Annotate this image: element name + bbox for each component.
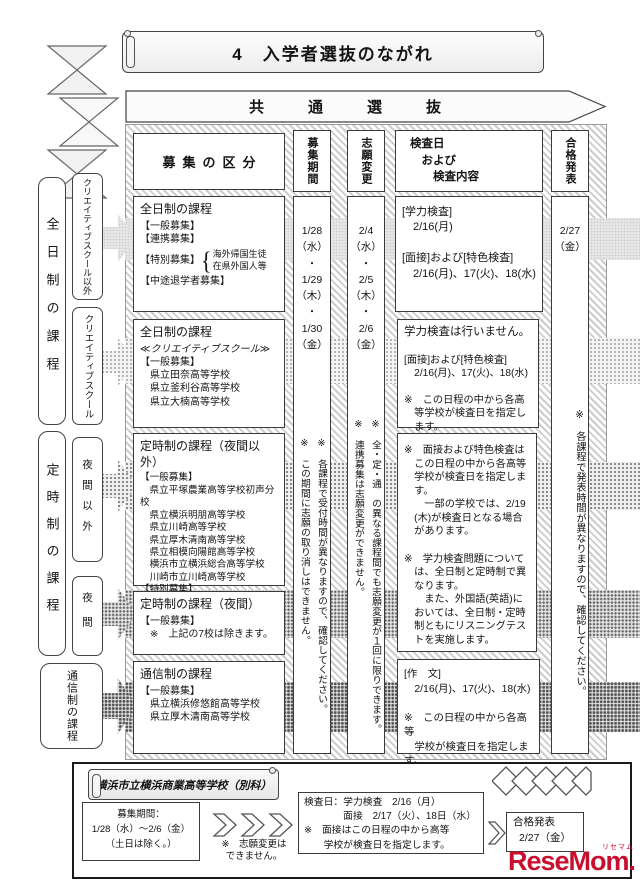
bekka-result-title: 合格発表 bbox=[513, 815, 577, 831]
sidebar-label-night-other: 夜間以外 bbox=[72, 437, 103, 562]
period-notes: ※ 各課程で受付時間が異なりますので、確認してください。 ※ この期間に志願の取… bbox=[294, 407, 330, 745]
column-header-exam: 検査日 および 検査内容 bbox=[395, 130, 543, 192]
category-items: 【一般募集】 県立横浜修悠館高等学校 県立厚木清南高等学校 bbox=[140, 685, 278, 725]
category-box-parttime-night: 定時制の課程（夜間） 【一般募集】 ※ 上記の7校は除きます。 bbox=[133, 591, 285, 655]
resemom-logo: リセマム ReseMom. bbox=[508, 846, 640, 882]
bekka-title: 横浜市立横浜商業高等学校（別科） bbox=[96, 777, 272, 793]
change-column: 2/4 （水） ・ 2/5 （木） ・ 2/6 （金） ※ 全・定・通 の異なる… bbox=[347, 196, 385, 754]
category-box-creative: 全日制の課程 ≪クリエイティブスクール≫ 【一般募集】 県立田奈高等学校 県立釜… bbox=[133, 319, 285, 428]
category-box-fulltime-general: 全日制の課程 【一般募集】 【連携募集】 【特別募集】 { 海外帰国生徒 在県外… bbox=[133, 196, 285, 312]
chevrons-right-icon bbox=[212, 812, 296, 838]
column-header-period: 募集期間 bbox=[293, 130, 331, 192]
bekka-change-note: ※ 志願変更は できません。 bbox=[198, 839, 310, 867]
scroll-pin-icon bbox=[124, 30, 131, 37]
category-title: 全日制の課程 bbox=[140, 325, 278, 341]
chevron-right-icon bbox=[487, 820, 507, 846]
result-note: ※ 各課程で発表時間が異なりますので、確認してください。 bbox=[552, 367, 588, 739]
sidebar-label-night: 夜間 bbox=[72, 576, 103, 656]
bekka-title-banner: 横浜市立横浜商業高等学校（別科） bbox=[88, 769, 279, 800]
category-items: 【一般募集】 【連携募集】 bbox=[140, 220, 278, 246]
column-header-change: 志願変更 bbox=[347, 130, 385, 192]
column-header-category: 募集の区分 bbox=[133, 133, 285, 190]
category-title: 通信制の課程 bbox=[140, 667, 278, 683]
brace-glyph: { bbox=[201, 244, 212, 277]
scroll-roll-icon bbox=[92, 774, 101, 798]
scroll-roll-icon bbox=[126, 36, 135, 68]
sidebar-label-creative-other: クリエイティブスクール以外 bbox=[72, 173, 103, 300]
period-dates: 1/28 （水） ・ 1/29 （木） ・ 1/30 （金） bbox=[294, 223, 330, 353]
period-column: 1/28 （水） ・ 1/29 （木） ・ 1/30 （金） ※ 各課程で受付時… bbox=[293, 196, 331, 754]
category-items: 【一般募集】 県立田奈高等学校 県立釜利谷高等学校 県立大楠高等学校 bbox=[140, 356, 278, 409]
scroll-pin-icon bbox=[269, 767, 276, 774]
common-selection-label: 共通選抜 bbox=[125, 90, 565, 123]
change-notes: ※ 全・定・通 の異なる課程間でも志願変更が１回に限りできます。 ※ 連携募集は… bbox=[348, 407, 384, 745]
category-items: 【一般募集】 ※ 上記の7校は除きます。 bbox=[140, 615, 278, 641]
sidebar-label-parttime: 定時制の課程 bbox=[38, 431, 66, 656]
sidebar-label-correspondence: 通信制の課程 bbox=[40, 663, 103, 749]
exam-box-fulltime-general: [学力検査] 2/16(月) [面接]および[特色検査] 2/16(月)、17(… bbox=[395, 196, 543, 312]
sidebar-label-creative: クリエイティブスクール bbox=[72, 307, 103, 425]
page-title-banner: 4 入学者選抜のながれ bbox=[122, 31, 544, 73]
page-title: 4 入学者選抜のながれ bbox=[232, 40, 433, 65]
special-recruit-row: 【特別募集】 { 海外帰国生徒 在県外国人等 bbox=[140, 246, 278, 275]
exam-box-correspondence: [作 文] 2/16(月)、17(火)、18(水) ※ この日程の中から各高等 … bbox=[397, 659, 540, 754]
category-subtitle: ≪クリエイティブスクール≫ bbox=[140, 343, 278, 356]
scroll-pin-icon bbox=[535, 30, 542, 37]
exam-creative-body: [面接]および[特色検査] 2/16(月)、17(火)、18(水) ※ この日程… bbox=[404, 340, 532, 434]
chevrons-left-icon bbox=[492, 765, 592, 797]
category-box-parttime-day: 定時制の課程（夜間以外） 【一般募集】 県立平塚農業高等学校初声分校 県立横浜明… bbox=[133, 433, 285, 586]
exam-notes-box: ※ 面接および特色検査は この日程の中から各高等 学校が検査日を指定しま す。 … bbox=[397, 433, 537, 652]
column-header-result: 合格発表 bbox=[551, 130, 589, 192]
bekka-result-date: 2/27（金） bbox=[513, 831, 577, 847]
special-recruit-items: 海外帰国生徒 在県外国人等 bbox=[213, 249, 267, 272]
category-box-correspondence: 通信制の課程 【一般募集】 県立横浜修悠館高等学校 県立厚木清南高等学校 bbox=[133, 661, 285, 754]
special-recruit-label: 【特別募集】 bbox=[140, 254, 200, 267]
category-title: 定時制の課程（夜間以外） bbox=[140, 439, 278, 470]
entrance-selection-flow-page: 4 入学者選抜のながれ 共通選抜 募集の区分 募集期間 志願変更 検査日 および… bbox=[0, 0, 640, 883]
exam-box-creative: 学力検査は行いません。 [面接]および[特色検査] 2/16(月)、17(火)、… bbox=[397, 319, 539, 428]
bekka-recruit-box: 募集期間： 1/28（水）～2/6（金） （土日は除く。） bbox=[82, 802, 200, 861]
bekka-exam-box: 検査日：学力検査 2/16（月） 面接 2/17（火）、18日（水） ※ 面接は… bbox=[298, 792, 484, 854]
category-title: 定時制の課程（夜間） bbox=[140, 597, 278, 613]
common-selection-arrow: 共通選抜 bbox=[125, 90, 607, 123]
category-items: 【一般募集】 県立平塚農業高等学校初声分校 県立横浜明朋高等学校 県立川崎高等学… bbox=[140, 472, 278, 609]
resemom-ruby: リセマム bbox=[602, 842, 634, 852]
result-date: 2/27 （金） bbox=[552, 223, 588, 256]
result-column: 2/27 （金） ※ 各課程で発表時間が異なりますので、確認してください。 bbox=[551, 196, 589, 754]
change-dates: 2/4 （水） ・ 2/5 （木） ・ 2/6 （金） bbox=[348, 223, 384, 353]
category-title: 全日制の課程 bbox=[140, 202, 278, 218]
exam-creative-title: 学力検査は行いません。 bbox=[404, 325, 532, 340]
sidebar-label-fulltime: 全日制の課程 bbox=[38, 177, 66, 425]
